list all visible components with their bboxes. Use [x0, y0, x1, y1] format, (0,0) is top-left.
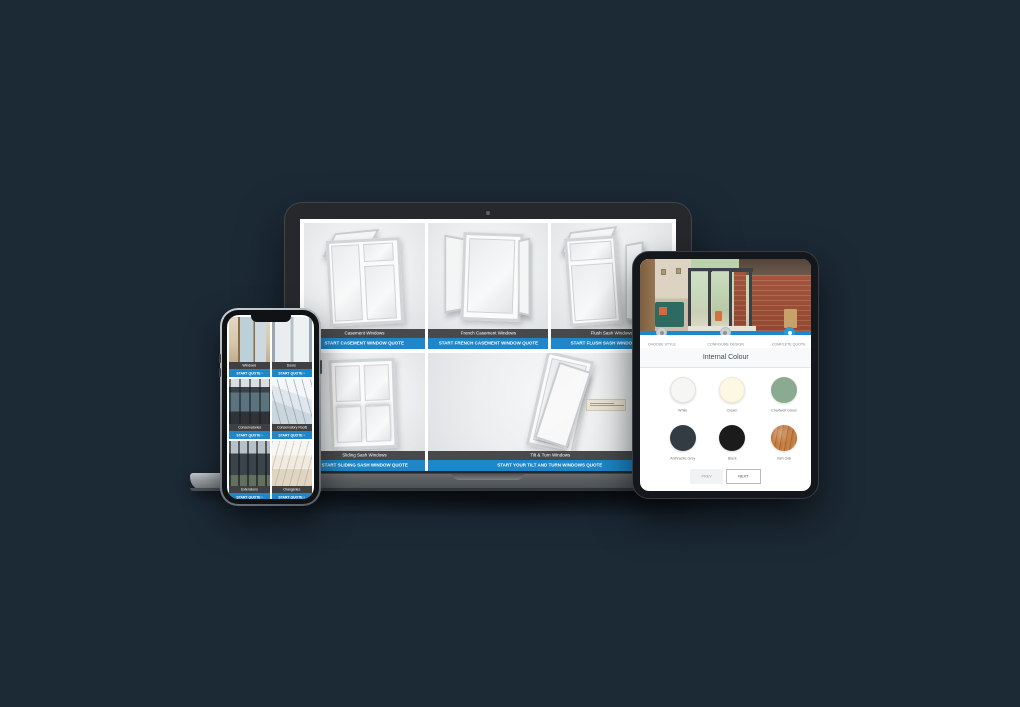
french-casement-quote-button[interactable]: START FRENCH CASEMENT WINDOW QUOTE — [428, 338, 549, 349]
watermark-note — [586, 399, 626, 411]
phone: Windows START QUOTE › Doors START QUOTE … — [220, 308, 321, 506]
photo-picture-frame — [661, 269, 666, 275]
casement-quote-button[interactable]: START CASEMENT WINDOW QUOTE — [304, 338, 425, 349]
conservatories-photo[interactable] — [229, 379, 270, 424]
product-title-bar: Casement Windows — [304, 329, 425, 338]
french-open-sash-right — [518, 238, 530, 317]
flush-frame — [564, 235, 622, 326]
products-row-1: Casement Windows START CASEMENT WINDOW Q… — [304, 223, 672, 349]
tablet-screen: CHOOSE STYLE CONFIGURE DESIGN COMPLETE Q… — [640, 259, 811, 491]
phone-product-grid: Windows START QUOTE › Doors START QUOTE … — [227, 315, 314, 499]
product-cell-sliding-sash: Sliding Sash Windows START SLIDING SASH … — [304, 353, 425, 471]
phone-screen: Windows START QUOTE › Doors START QUOTE … — [227, 315, 314, 499]
casement-frame — [326, 237, 404, 327]
sliding-sash-window-image[interactable] — [304, 353, 425, 451]
bifold-doors-photo — [640, 259, 811, 331]
phone-card-doors: Doors START QUOTE › — [272, 317, 313, 377]
webcam-icon — [486, 211, 490, 215]
photo-cushion — [659, 307, 668, 316]
swatch-black-circle[interactable] — [719, 425, 745, 451]
orangeries-start-quote-button[interactable]: START QUOTE › — [272, 493, 313, 499]
doors-start-quote-button[interactable]: START QUOTE › — [272, 369, 313, 377]
phone-card-extensions: Extensions START QUOTE › — [229, 441, 270, 499]
step-label-choose-style: CHOOSE STYLE — [640, 339, 692, 350]
photo-patio-chair — [715, 311, 722, 321]
next-button[interactable]: NEXT — [726, 469, 761, 484]
swatch-black[interactable]: Black — [717, 425, 747, 464]
phone-card-windows: Windows START QUOTE › — [229, 317, 270, 377]
swatch-chartwell-green[interactable]: Chartwell Green — [748, 377, 812, 416]
doors-photo[interactable] — [272, 317, 313, 362]
step-label-complete-quote: COMPLETE QUOTE — [759, 339, 811, 350]
windows-photo[interactable] — [229, 317, 270, 362]
wizard-footer: PREV NEXT — [640, 466, 811, 487]
swatch-irish-oak[interactable]: Irish Oak — [748, 425, 812, 464]
swatch-cream-circle[interactable] — [719, 377, 745, 403]
sliding-sash-quote-button[interactable]: START SLIDING SASH WINDOW QUOTE — [304, 460, 425, 471]
photo-picture-frame — [676, 268, 681, 274]
panel-title: Internal Colour — [703, 354, 749, 362]
phone-volume-button — [219, 368, 221, 377]
phone-bezel: Windows START QUOTE › Doors START QUOTE … — [222, 310, 319, 504]
swatch-chartwell-green-circle[interactable] — [771, 377, 797, 403]
windows-products-page: Casement Windows START CASEMENT WINDOW Q… — [300, 219, 676, 471]
products-row-2: Sliding Sash Windows START SLIDING SASH … — [304, 353, 672, 471]
colour-swatch-grid: White Cream Chartwell Green Anthracite G… — [640, 368, 811, 466]
product-title: Casement Windows — [344, 331, 384, 336]
swatch-anthracite-grey[interactable]: Anthracite Grey — [648, 425, 717, 464]
swatch-irish-oak-circle[interactable] — [771, 425, 797, 451]
step-labels: CHOOSE STYLE CONFIGURE DESIGN COMPLETE Q… — [640, 335, 811, 348]
conservatories-start-quote-button[interactable]: START QUOTE › — [229, 431, 270, 439]
laptop-base-notch — [452, 473, 524, 480]
tablet: CHOOSE STYLE CONFIGURE DESIGN COMPLETE Q… — [632, 251, 819, 499]
laptop-display: Casement Windows START CASEMENT WINDOW Q… — [300, 219, 676, 471]
card-title-bar: Conservatories — [229, 424, 270, 431]
product-title-bar: French Casement Windows — [428, 329, 549, 338]
phone-card-conservatories: Conservatories START QUOTE › — [229, 379, 270, 439]
photo-brick-pillar — [734, 271, 746, 331]
photo-glass-pane — [691, 271, 708, 329]
product-cell-casement: Casement Windows START CASEMENT WINDOW Q… — [304, 223, 425, 349]
phone-notch — [251, 315, 291, 322]
phone-volume-button — [219, 354, 221, 363]
french-casement-window-image[interactable] — [428, 223, 549, 329]
orangeries-photo[interactable] — [272, 441, 313, 486]
extensions-photo[interactable] — [229, 441, 270, 486]
swatch-anthracite-grey-circle[interactable] — [670, 425, 696, 451]
card-title-bar: Extensions — [229, 486, 270, 493]
swatch-cream[interactable]: Cream — [717, 377, 747, 416]
sliding-sash-frame — [328, 358, 397, 450]
french-frame — [460, 232, 523, 322]
casement-window-image[interactable] — [304, 223, 425, 329]
laptop: Casement Windows START CASEMENT WINDOW Q… — [284, 202, 692, 474]
swatch-white[interactable]: White — [648, 377, 717, 416]
prev-button[interactable]: PREV — [690, 469, 723, 484]
card-title-bar: Orangeries — [272, 486, 313, 493]
product-title-bar: Sliding Sash Windows — [304, 451, 425, 460]
photo-door-frame — [749, 268, 752, 331]
product-cell-french-casement: French Casement Windows START FRENCH CAS… — [428, 223, 549, 349]
conservatory-roofs-start-quote-button[interactable]: START QUOTE › — [272, 431, 313, 439]
photo-wood-cabinet — [640, 259, 655, 331]
card-title-bar: Conservatory Roofs — [272, 424, 313, 431]
conservatory-roofs-photo[interactable] — [272, 379, 313, 424]
windows-start-quote-button[interactable]: START QUOTE › — [229, 369, 270, 377]
scene-background: Casement Windows START CASEMENT WINDOW Q… — [0, 0, 1020, 707]
photo-door-frame — [729, 268, 732, 331]
step-label-configure-design: CONFIGURE DESIGN — [696, 339, 756, 350]
phone-power-button — [320, 360, 322, 374]
panel-title-bar: Internal Colour — [640, 348, 811, 368]
phone-card-orangeries: Orangeries START QUOTE › — [272, 441, 313, 499]
swatch-white-circle[interactable] — [670, 377, 696, 403]
card-title-bar: Windows — [229, 362, 270, 369]
photo-garden-chair — [784, 309, 798, 328]
extensions-start-quote-button[interactable]: START QUOTE › — [229, 493, 270, 499]
card-title-bar: Doors — [272, 362, 313, 369]
phone-card-conservatory-roofs: Conservatory Roofs START QUOTE › — [272, 379, 313, 439]
